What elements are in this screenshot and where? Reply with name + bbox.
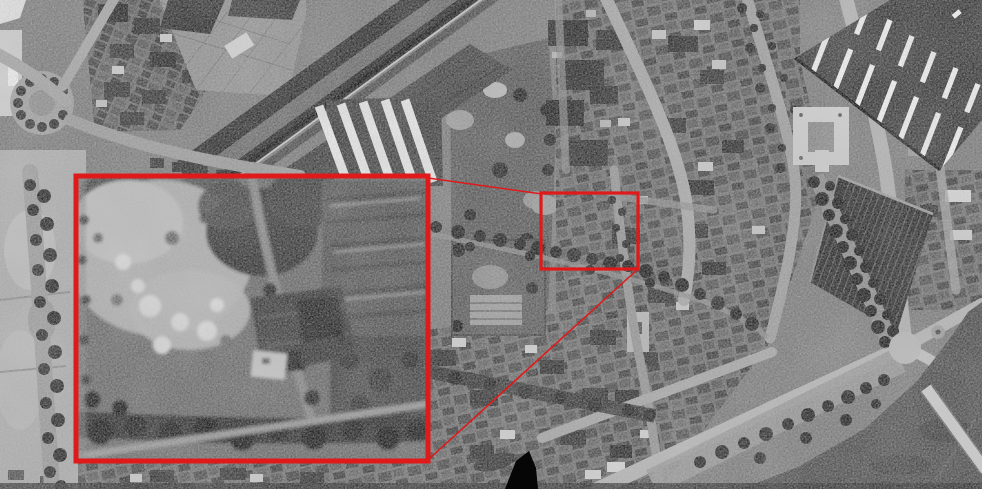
aerial-photo: [0, 0, 982, 489]
aerial-photo-canvas: [0, 0, 982, 489]
photo-grain: [0, 0, 982, 489]
